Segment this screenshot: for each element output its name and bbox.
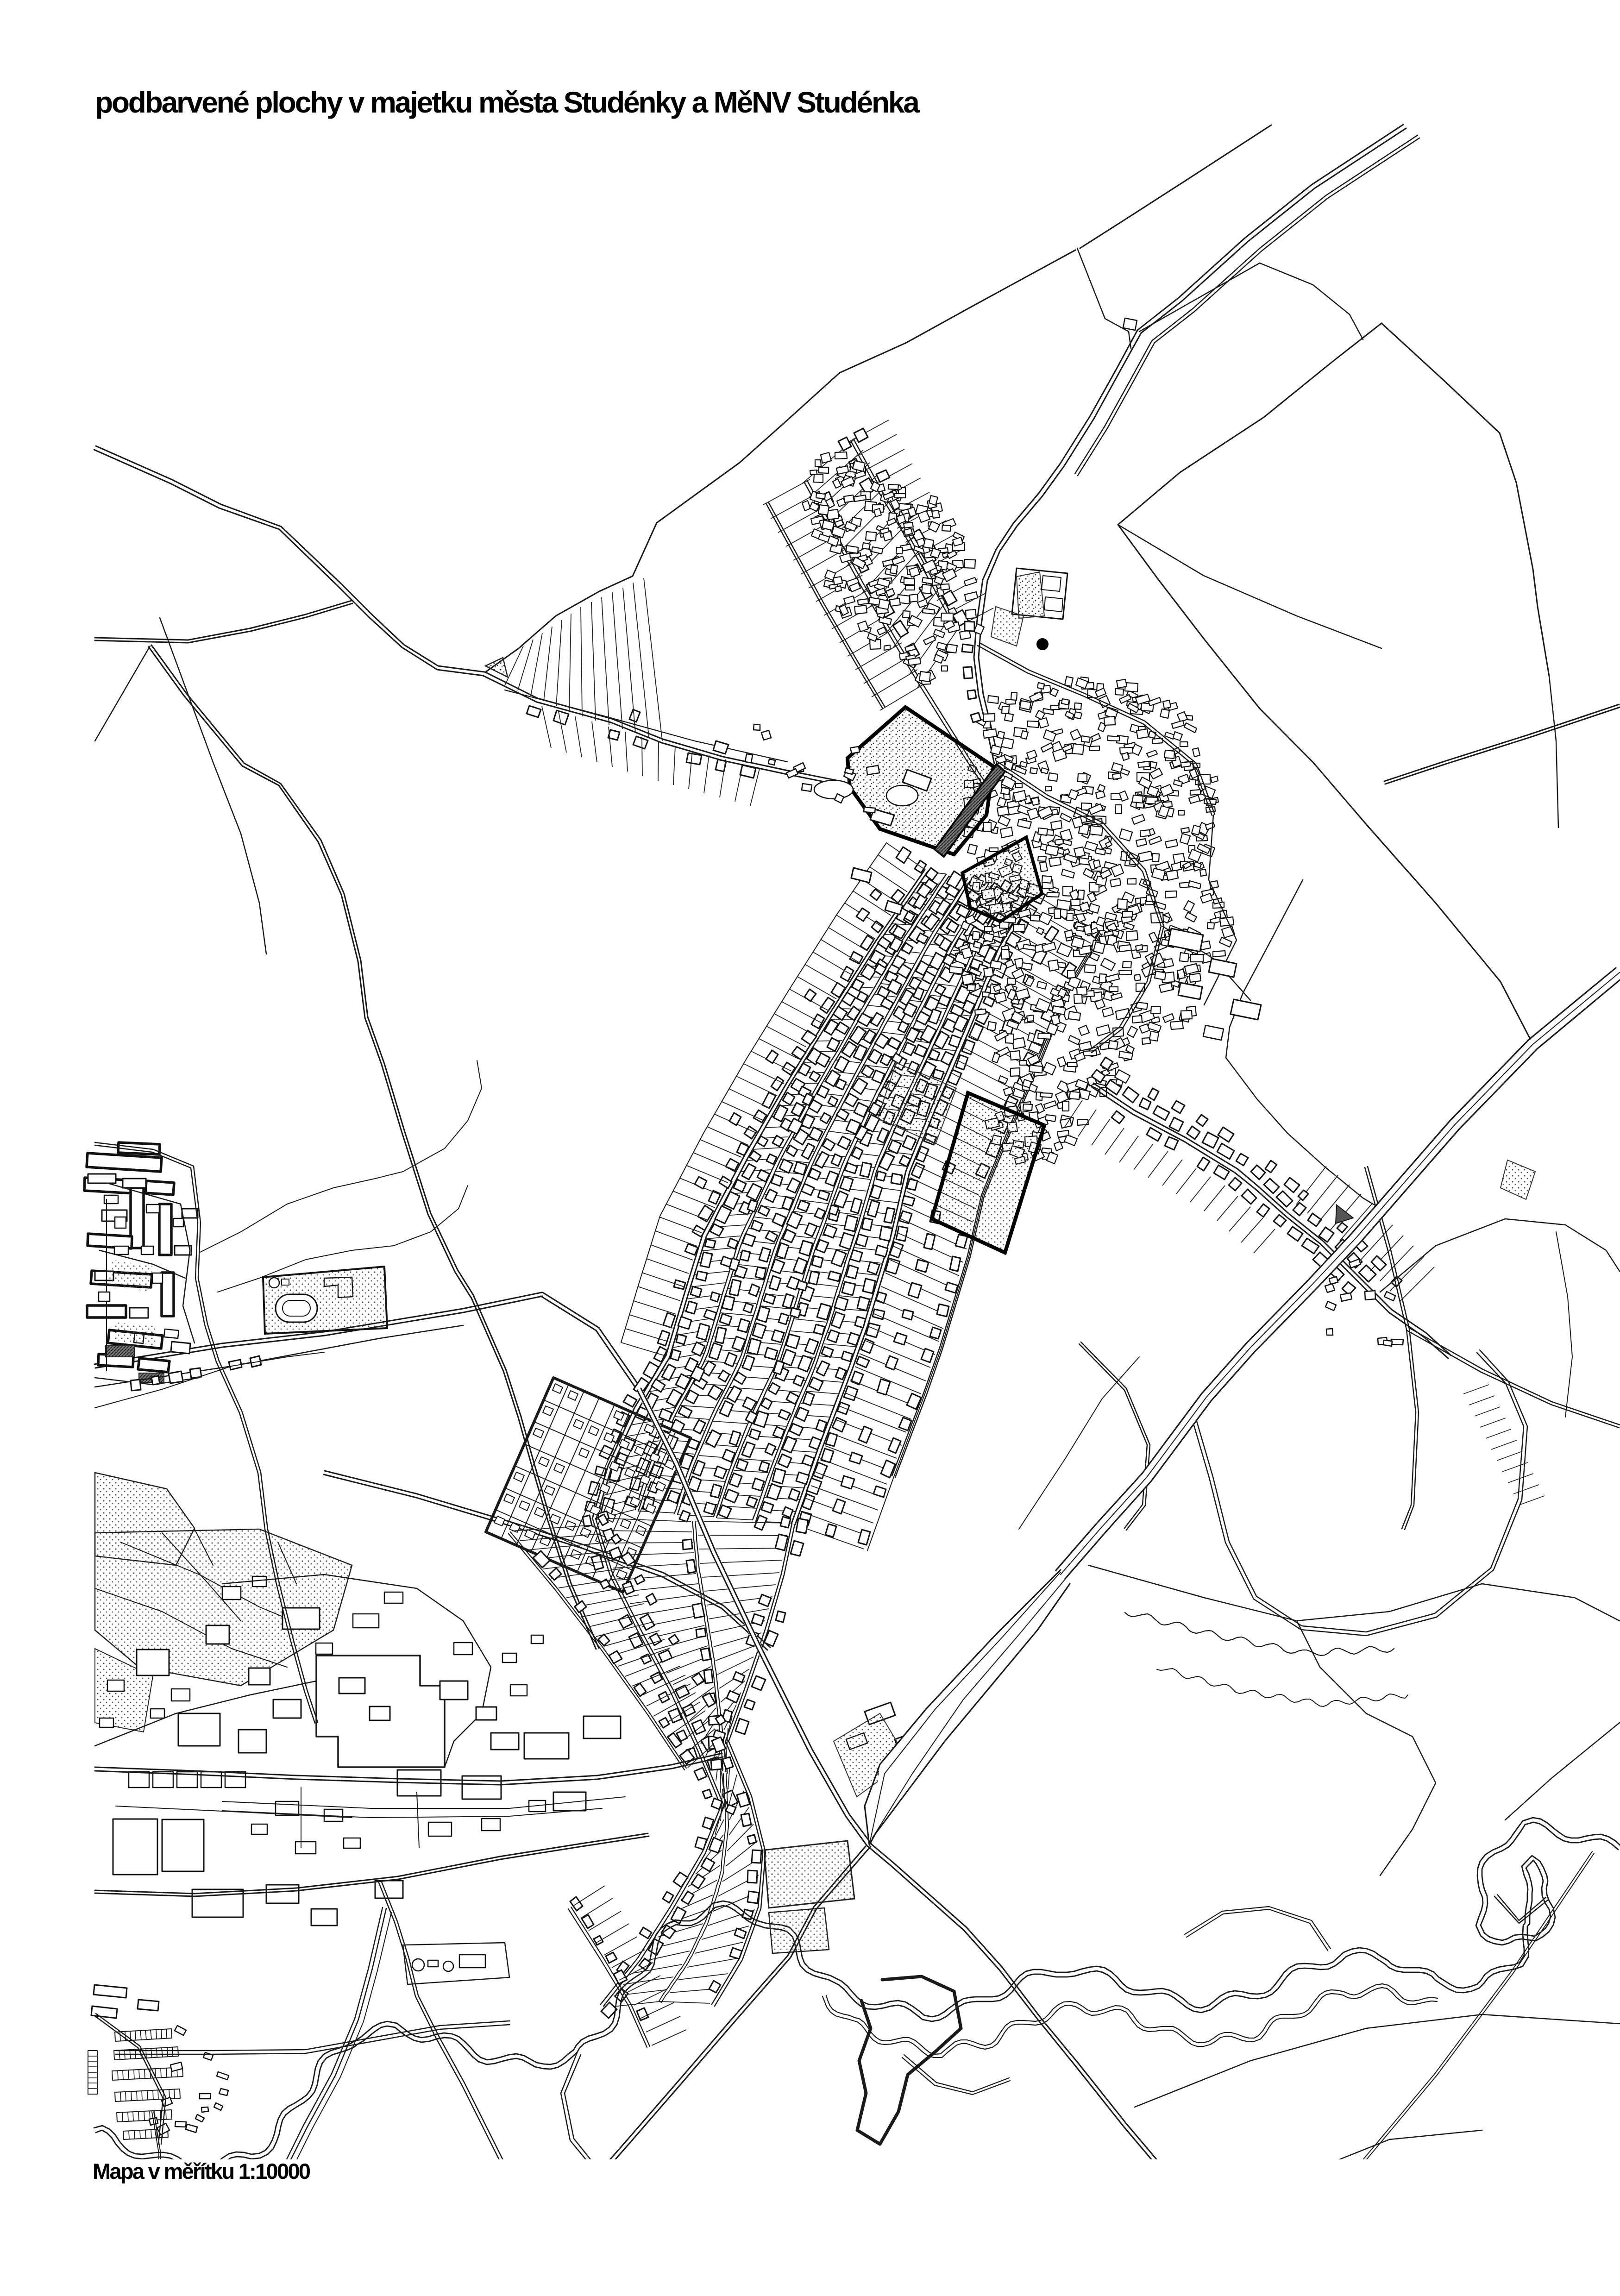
svg-text:Mapa v měřítku 1:10000: Mapa v měřítku 1:10000 [93,2159,310,2183]
svg-text:podbarvené plochy v majetku mě: podbarvené plochy v majetku města Studén… [95,86,920,119]
